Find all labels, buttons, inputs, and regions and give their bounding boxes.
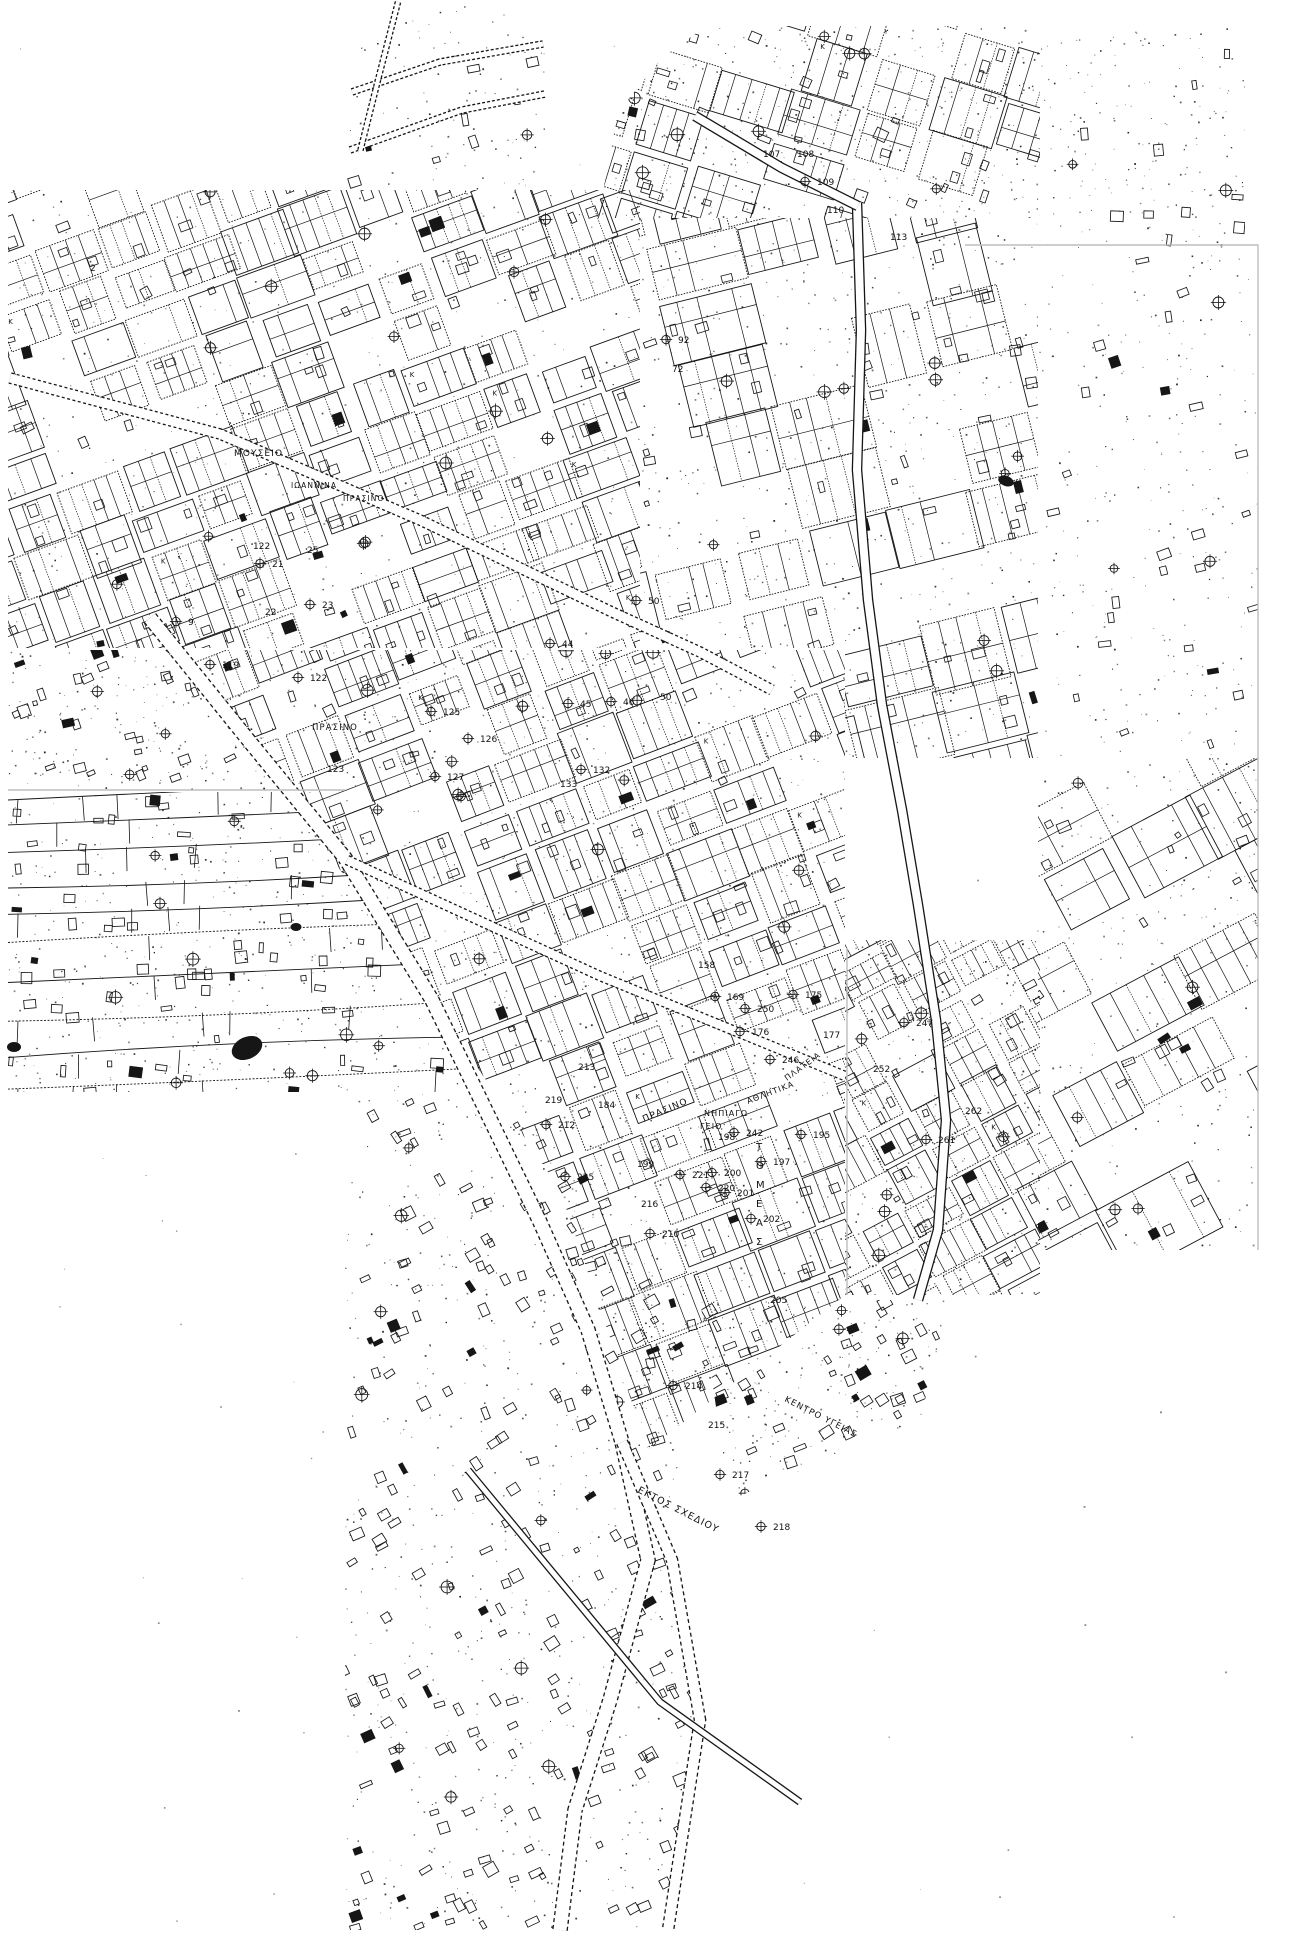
block-number-110: 110 [827, 206, 844, 216]
block-number-169: 169 [727, 993, 744, 1003]
corner-letter: Κ [8, 318, 13, 326]
block-number-217: 217 [732, 1471, 749, 1481]
corner-letter: Κ [410, 371, 415, 379]
block-number-2: 2 [90, 264, 96, 274]
block-number-22: 22 [265, 608, 276, 618]
map-label-6: ΓΕΙΟ [700, 1122, 723, 1131]
block-number-252: 252 [873, 1065, 890, 1075]
block-number-184: 184 [598, 1101, 615, 1111]
corner-letter: Κ [862, 1099, 867, 1107]
block-number-247: 247 [916, 1019, 933, 1029]
block-number-133: 133 [560, 780, 577, 790]
block-number-198: 198 [718, 1133, 735, 1143]
ink-blob [7, 1042, 21, 1052]
corner-letter: Κ [797, 811, 802, 819]
block-number-21: 21 [272, 560, 283, 570]
block-number-199: 199 [637, 1160, 654, 1170]
label-letter: Ε [756, 1199, 763, 1210]
label-letter: Μ [756, 1180, 766, 1191]
block-number-215: 215 [708, 1421, 725, 1431]
block-number-50: 50 [660, 693, 672, 703]
corner-letter: Κ [704, 738, 709, 746]
block-number-262: 262 [965, 1107, 982, 1117]
label-letter: Ο [756, 1161, 765, 1172]
corner-letter: Κ [418, 694, 423, 702]
block-number-216: 216 [641, 1200, 658, 1210]
block-number-225: 225 [577, 1173, 594, 1183]
block-number-113: 113 [890, 233, 907, 243]
map-label-2: ΠΡΑΣΙΝΟ [343, 494, 384, 503]
block-number-242: 242 [746, 1129, 763, 1139]
block-number-9: 9 [188, 618, 194, 628]
block-number-23: 23 [322, 601, 333, 611]
block-number-201: 201 [737, 1189, 754, 1199]
block-number-45: 45 [580, 700, 591, 710]
block-number-119: 119 [222, 661, 239, 671]
block-number-200: 200 [724, 1169, 741, 1179]
block-number-127: 127 [447, 773, 464, 783]
block-number-92: 92 [678, 336, 689, 346]
block-number-125: 125 [443, 708, 460, 718]
block-number-107: 107 [763, 150, 780, 160]
block-number-46: 46 [623, 698, 635, 708]
block-number-202: 202 [763, 1215, 780, 1225]
block-number-177: 177 [823, 1031, 840, 1041]
scanned-cadastral-map-page: ΚΚΚΚΚΚΚΚΚΚΚΚΚΚΚΚΚΚΚΚΚΚΚΚΚΚ21222521232299… [0, 0, 1301, 1936]
block-number-44: 44 [562, 640, 574, 650]
block-number-210: 210 [662, 1230, 679, 1240]
map-label-5: ΝΗΠΙΑΓΩ [704, 1109, 748, 1118]
block-number-212: 212 [558, 1121, 575, 1131]
block-number-72: 72 [672, 365, 683, 375]
label-letter: Α [756, 1218, 764, 1229]
block-number-158: 158 [698, 961, 715, 971]
block-number-219: 219 [545, 1096, 562, 1106]
block-number-50: 50 [648, 597, 660, 607]
block-number-261: 261 [938, 1136, 955, 1146]
block-number-195: 195 [813, 1131, 830, 1141]
block-number-126: 126 [480, 735, 497, 745]
block-number-214: 214 [685, 1382, 702, 1392]
block-number-197: 197 [773, 1158, 790, 1168]
label-letter: Τ [755, 1142, 763, 1153]
map-label-3: ΠΡΑΣΙΝΟ [312, 723, 358, 733]
ink-blob [291, 923, 302, 931]
block-number-122: 122 [310, 674, 327, 684]
block-number-25: 25 [307, 546, 318, 556]
corner-letter: Κ [635, 1093, 640, 1101]
block-number-221: 221 [692, 1171, 709, 1181]
block-number-250: 250 [757, 1005, 774, 1015]
corner-letter: Κ [493, 390, 498, 398]
map-label-0: ΜΟΥΣΕΙΟ [234, 449, 283, 459]
corner-letter: Κ [991, 1124, 996, 1132]
corner-letter: Κ [572, 461, 577, 469]
corner-letter: Κ [161, 558, 166, 566]
corner-letter: Κ [820, 43, 825, 51]
block-number-213: 213 [578, 1063, 595, 1073]
block-number-108: 108 [797, 150, 814, 160]
block-number-132: 132 [593, 766, 610, 776]
block-number-175: 175 [805, 991, 822, 1001]
block-number-122: 122 [253, 542, 270, 552]
map-label-1: ΙΩΑΝΝΙΝΑ [291, 481, 337, 490]
block-number-220: 220 [718, 1184, 735, 1194]
block-number-205: 205 [770, 1296, 787, 1306]
block-number-123: 123 [327, 765, 344, 775]
block-number-176: 176 [752, 1028, 769, 1038]
block-number-109: 109 [817, 178, 834, 188]
cadastral-map: ΚΚΚΚΚΚΚΚΚΚΚΚΚΚΚΚΚΚΚΚΚΚΚΚΚΚ21222521232299… [0, 0, 1301, 1936]
label-letter: Σ [756, 1237, 763, 1248]
block-number-218: 218 [773, 1523, 790, 1533]
